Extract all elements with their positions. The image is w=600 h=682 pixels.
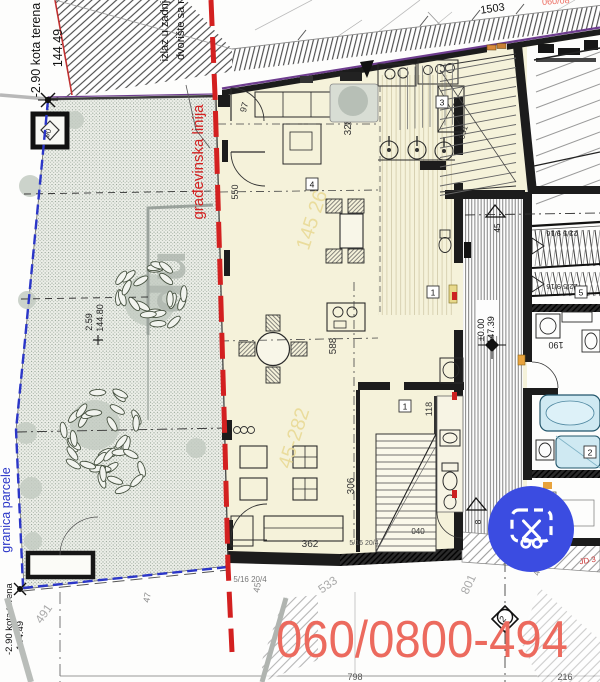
svg-text:118: 118 — [424, 402, 434, 416]
svg-text:47: 47 — [141, 592, 153, 604]
svg-text:22/5 9/16: 22/5 9/16 — [546, 229, 577, 238]
svg-text:798: 798 — [347, 672, 362, 682]
svg-text:22/5 9/16: 22/5 9/16 — [546, 282, 577, 291]
svg-text:-2.90 kota terena: -2.90 kota terena — [29, 3, 43, 98]
svg-text:060/0800-494: 060/0800-494 — [276, 611, 568, 669]
svg-text:144.80: 144.80 — [95, 304, 105, 332]
svg-text:190: 190 — [548, 340, 563, 350]
svg-text:040: 040 — [411, 527, 425, 536]
svg-text:dvorište sa r: dvorište sa r — [175, 0, 187, 60]
svg-text:2.59: 2.59 — [84, 313, 94, 331]
svg-text:granica parcele: granica parcele — [0, 467, 13, 553]
svg-text:2: 2 — [588, 448, 593, 458]
svg-text:45: 45 — [251, 582, 263, 594]
svg-text:1: 1 — [431, 288, 436, 298]
svg-text:1: 1 — [403, 402, 408, 412]
svg-text:306: 306 — [346, 477, 357, 494]
svg-text:147.39: 147.39 — [486, 316, 496, 344]
svg-text:građevinska linija: građevinska linija — [190, 104, 207, 220]
svg-text:±0.00: ±0.00 — [476, 319, 486, 341]
svg-text:362: 362 — [302, 539, 319, 550]
svg-text:8: 8 — [474, 519, 483, 524]
svg-text:izlaz u zadnje: izlaz u zadnje — [159, 0, 171, 61]
svg-text:45: 45 — [493, 223, 502, 232]
svg-text:3: 3 — [440, 98, 445, 108]
svg-text:5: 5 — [579, 288, 584, 298]
svg-text:216: 216 — [557, 672, 572, 682]
svg-text:588: 588 — [328, 337, 339, 354]
svg-text:5/16 20/4: 5/16 20/4 — [233, 575, 267, 584]
svg-text:144.49: 144.49 — [51, 29, 65, 67]
svg-text:550: 550 — [230, 184, 240, 199]
svg-text:5/16 20/4: 5/16 20/4 — [349, 540, 378, 547]
